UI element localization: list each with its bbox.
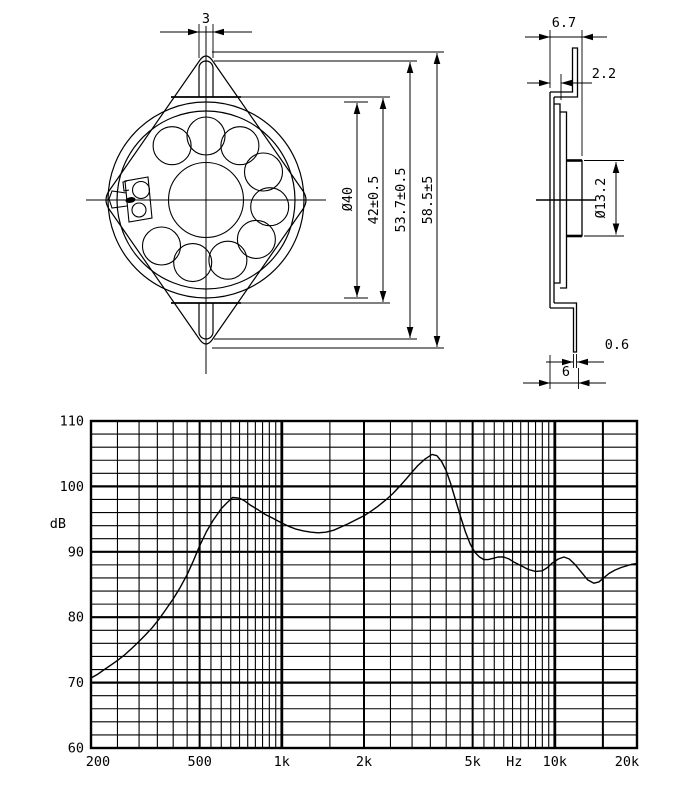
frame-wall xyxy=(554,104,560,283)
x-tick-label: 200 xyxy=(86,754,110,770)
vent-hole xyxy=(153,127,191,165)
y-tick-label: 100 xyxy=(60,479,84,495)
vent-hole xyxy=(209,241,247,279)
terminal-pad xyxy=(133,182,150,199)
vent-holes xyxy=(143,117,289,282)
y-tick-label: 70 xyxy=(68,675,84,691)
dim-magnet-diameter: Ø13.2 xyxy=(593,178,609,219)
x-tick-label: Hz xyxy=(506,754,522,770)
dim-tab-thickness: 0.6 xyxy=(605,337,629,353)
top-tab xyxy=(550,48,578,97)
x-tick-label: 1k xyxy=(274,754,290,770)
x-tick-label: 2k xyxy=(356,754,372,770)
x-tick-label: 500 xyxy=(187,754,211,770)
y-axis-unit-label: dB xyxy=(50,516,66,532)
dim-frame-width: 42±0.5 xyxy=(366,176,382,225)
x-axis-tick-labels: 2005001k2k5kHz10k20k xyxy=(86,754,639,770)
frequency-response-chart: 11010090807060 2005001k2k5kHz10k20k dB xyxy=(50,414,639,771)
vent-hole xyxy=(237,220,275,258)
dim-cone-diameter: Ø40 xyxy=(340,187,356,211)
vent-hole xyxy=(221,127,259,165)
x-tick-label: 20k xyxy=(615,754,639,770)
dim-flange-offset: 2.2 xyxy=(592,66,616,82)
side-extension-lines xyxy=(550,30,624,389)
x-tick-label: 5k xyxy=(465,754,481,770)
y-tick-label: 110 xyxy=(60,414,84,430)
y-tick-label: 60 xyxy=(68,741,84,757)
x-tick-label: 10k xyxy=(543,754,567,770)
front-view: 3 Ø40 42±0.5 53.7±0.5 58.5±5 xyxy=(86,11,444,374)
chart-gridlines xyxy=(91,421,637,748)
side-view: 6.7 2.2 Ø13.2 0.6 6 xyxy=(523,15,629,389)
vent-hole xyxy=(143,227,181,265)
bottom-tab xyxy=(550,303,577,352)
magnet xyxy=(567,161,583,237)
terminal-pad xyxy=(132,203,146,217)
speaker-datasheet: 3 Ø40 42±0.5 53.7±0.5 58.5±5 xyxy=(0,0,694,788)
dim-tab-width: 6 xyxy=(562,364,570,380)
y-tick-label: 80 xyxy=(68,610,84,626)
datasheet-figure: 3 Ø40 42±0.5 53.7±0.5 58.5±5 xyxy=(0,0,694,788)
dim-slot-span: 53.7±0.5 xyxy=(393,167,409,232)
y-tick-label: 90 xyxy=(68,544,84,560)
dim-depth: 6.7 xyxy=(552,15,576,31)
y-axis-tick-labels: 11010090807060 xyxy=(60,414,84,757)
dim-overall-height: 58.5±5 xyxy=(420,176,436,225)
dim-slot-width: 3 xyxy=(202,11,210,27)
vent-hole xyxy=(245,153,283,191)
